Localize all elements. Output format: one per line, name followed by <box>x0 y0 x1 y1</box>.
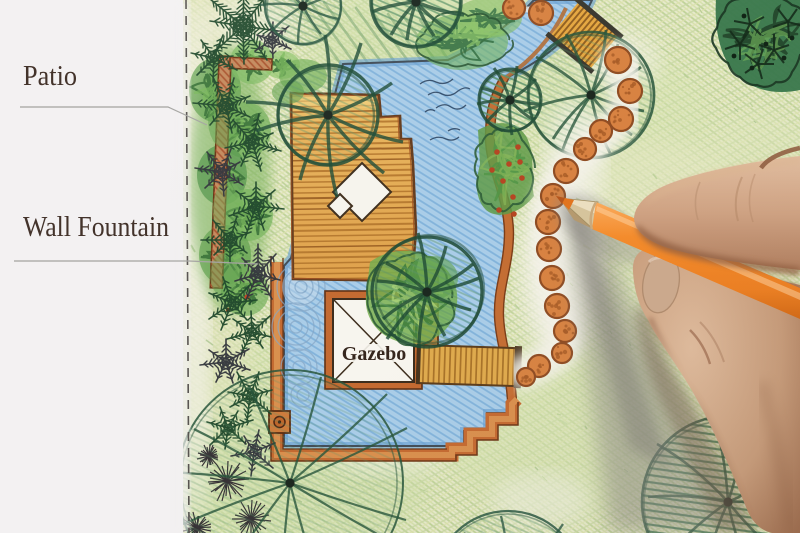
svg-text:Wall Fountain: Wall Fountain <box>23 212 169 243</box>
svg-text:Gazebo: Gazebo <box>342 343 406 365</box>
svg-text:Patio: Patio <box>23 61 77 92</box>
